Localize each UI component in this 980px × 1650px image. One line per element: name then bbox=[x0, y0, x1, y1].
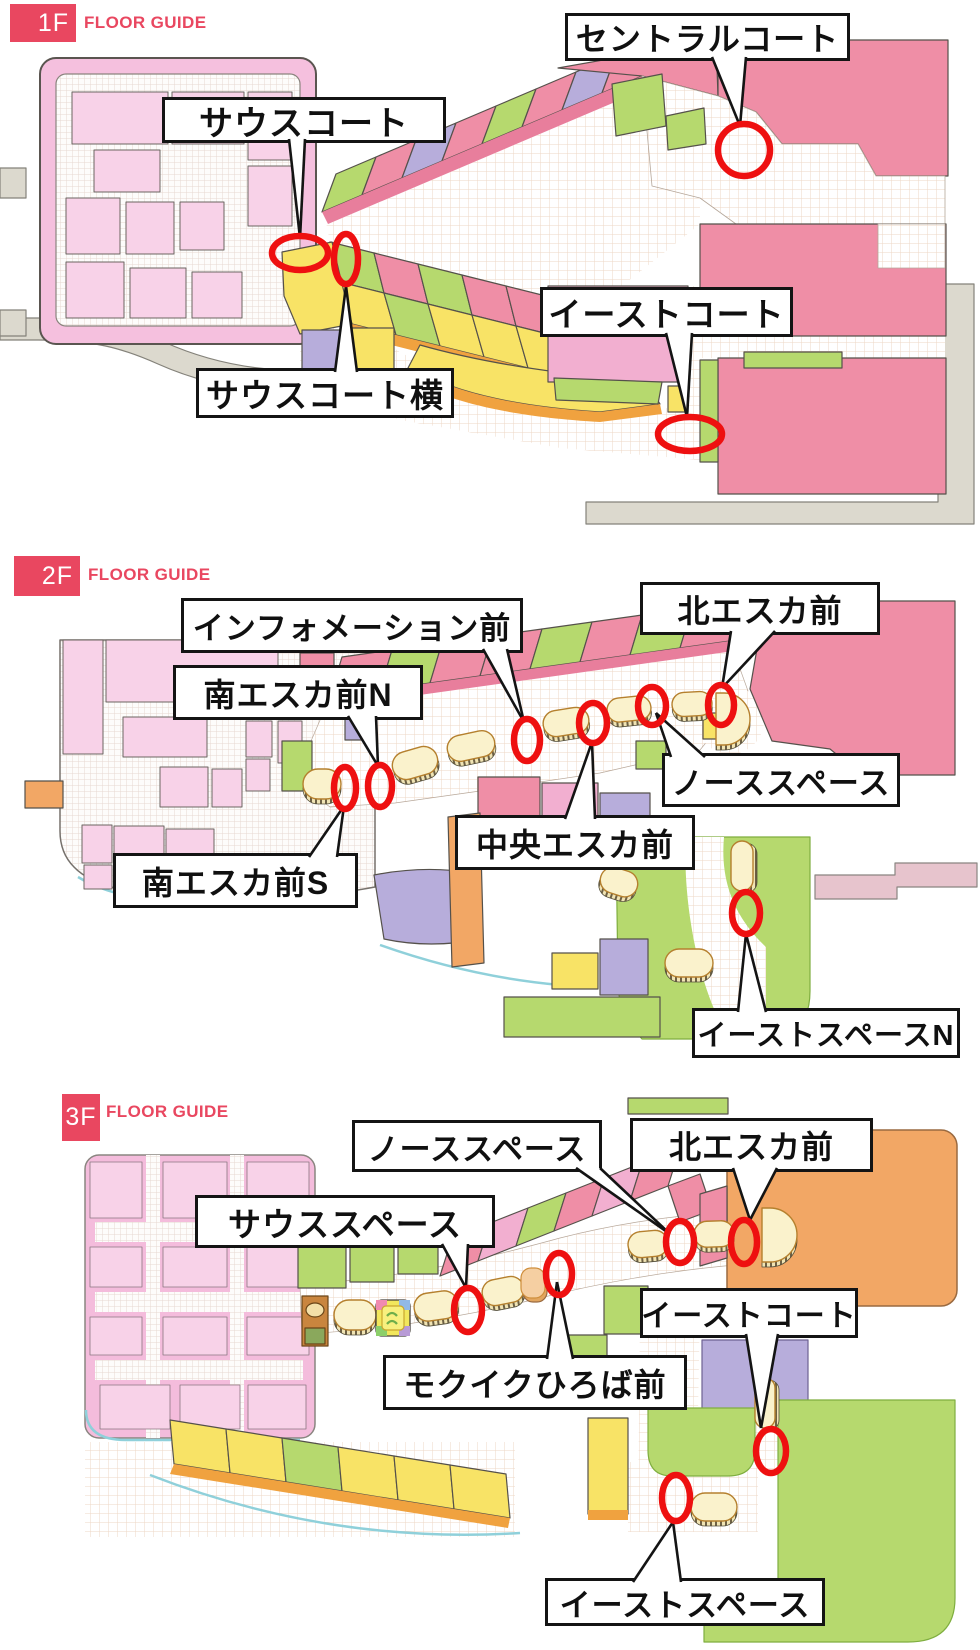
floor-map-1f bbox=[0, 0, 980, 545]
floor-1f-guide-label: FLOOR GUIDE bbox=[84, 13, 206, 33]
mokuiku-playground-icon bbox=[376, 1300, 410, 1336]
callout-1f-east-court: イーストコート bbox=[540, 287, 793, 337]
callout-3f-east-space: イーストスペース bbox=[545, 1578, 825, 1626]
callout-2f-information-mae: インフォメーション前 bbox=[181, 598, 523, 653]
floor-2f-badge: 2F bbox=[14, 556, 80, 596]
callout-3f-north-space: ノーススペース bbox=[352, 1120, 602, 1172]
callout-3f-south-space: サウススペース bbox=[195, 1195, 495, 1248]
callout-3f-east-court: イーストコート bbox=[640, 1288, 858, 1338]
floor-guide-page: 1F FLOOR GUIDE 2F FLOOR GUIDE 3F FLOOR G… bbox=[0, 0, 980, 1650]
floor-1f-badge: 1F bbox=[10, 4, 76, 42]
callout-3f-kita-esca-mae: 北エスカ前 bbox=[630, 1118, 873, 1172]
floor-3f-guide-label: FLOOR GUIDE bbox=[106, 1102, 228, 1122]
callout-2f-minami-esca-mae-n: 南エスカ前N bbox=[173, 665, 423, 720]
callout-2f-north-space: ノーススペース bbox=[662, 753, 900, 807]
callout-1f-south-court: サウスコート bbox=[162, 97, 446, 143]
floor-2f-guide-label: FLOOR GUIDE bbox=[88, 565, 210, 585]
callout-2f-east-space-n: イーストスペースN bbox=[692, 1008, 960, 1058]
callout-1f-central-court: セントラルコート bbox=[565, 13, 850, 61]
callout-2f-minami-esca-mae-s: 南エスカ前S bbox=[113, 853, 358, 908]
callout-2f-chuo-esca-mae: 中央エスカ前 bbox=[455, 815, 695, 870]
callout-3f-mokuiku-hiroba-mae: モクイクひろば前 bbox=[383, 1355, 687, 1410]
callout-2f-kita-esca-mae: 北エスカ前 bbox=[640, 582, 880, 635]
callout-1f-south-court-side: サウスコート横 bbox=[196, 368, 454, 418]
floor-3f-badge: 3F bbox=[62, 1094, 100, 1141]
